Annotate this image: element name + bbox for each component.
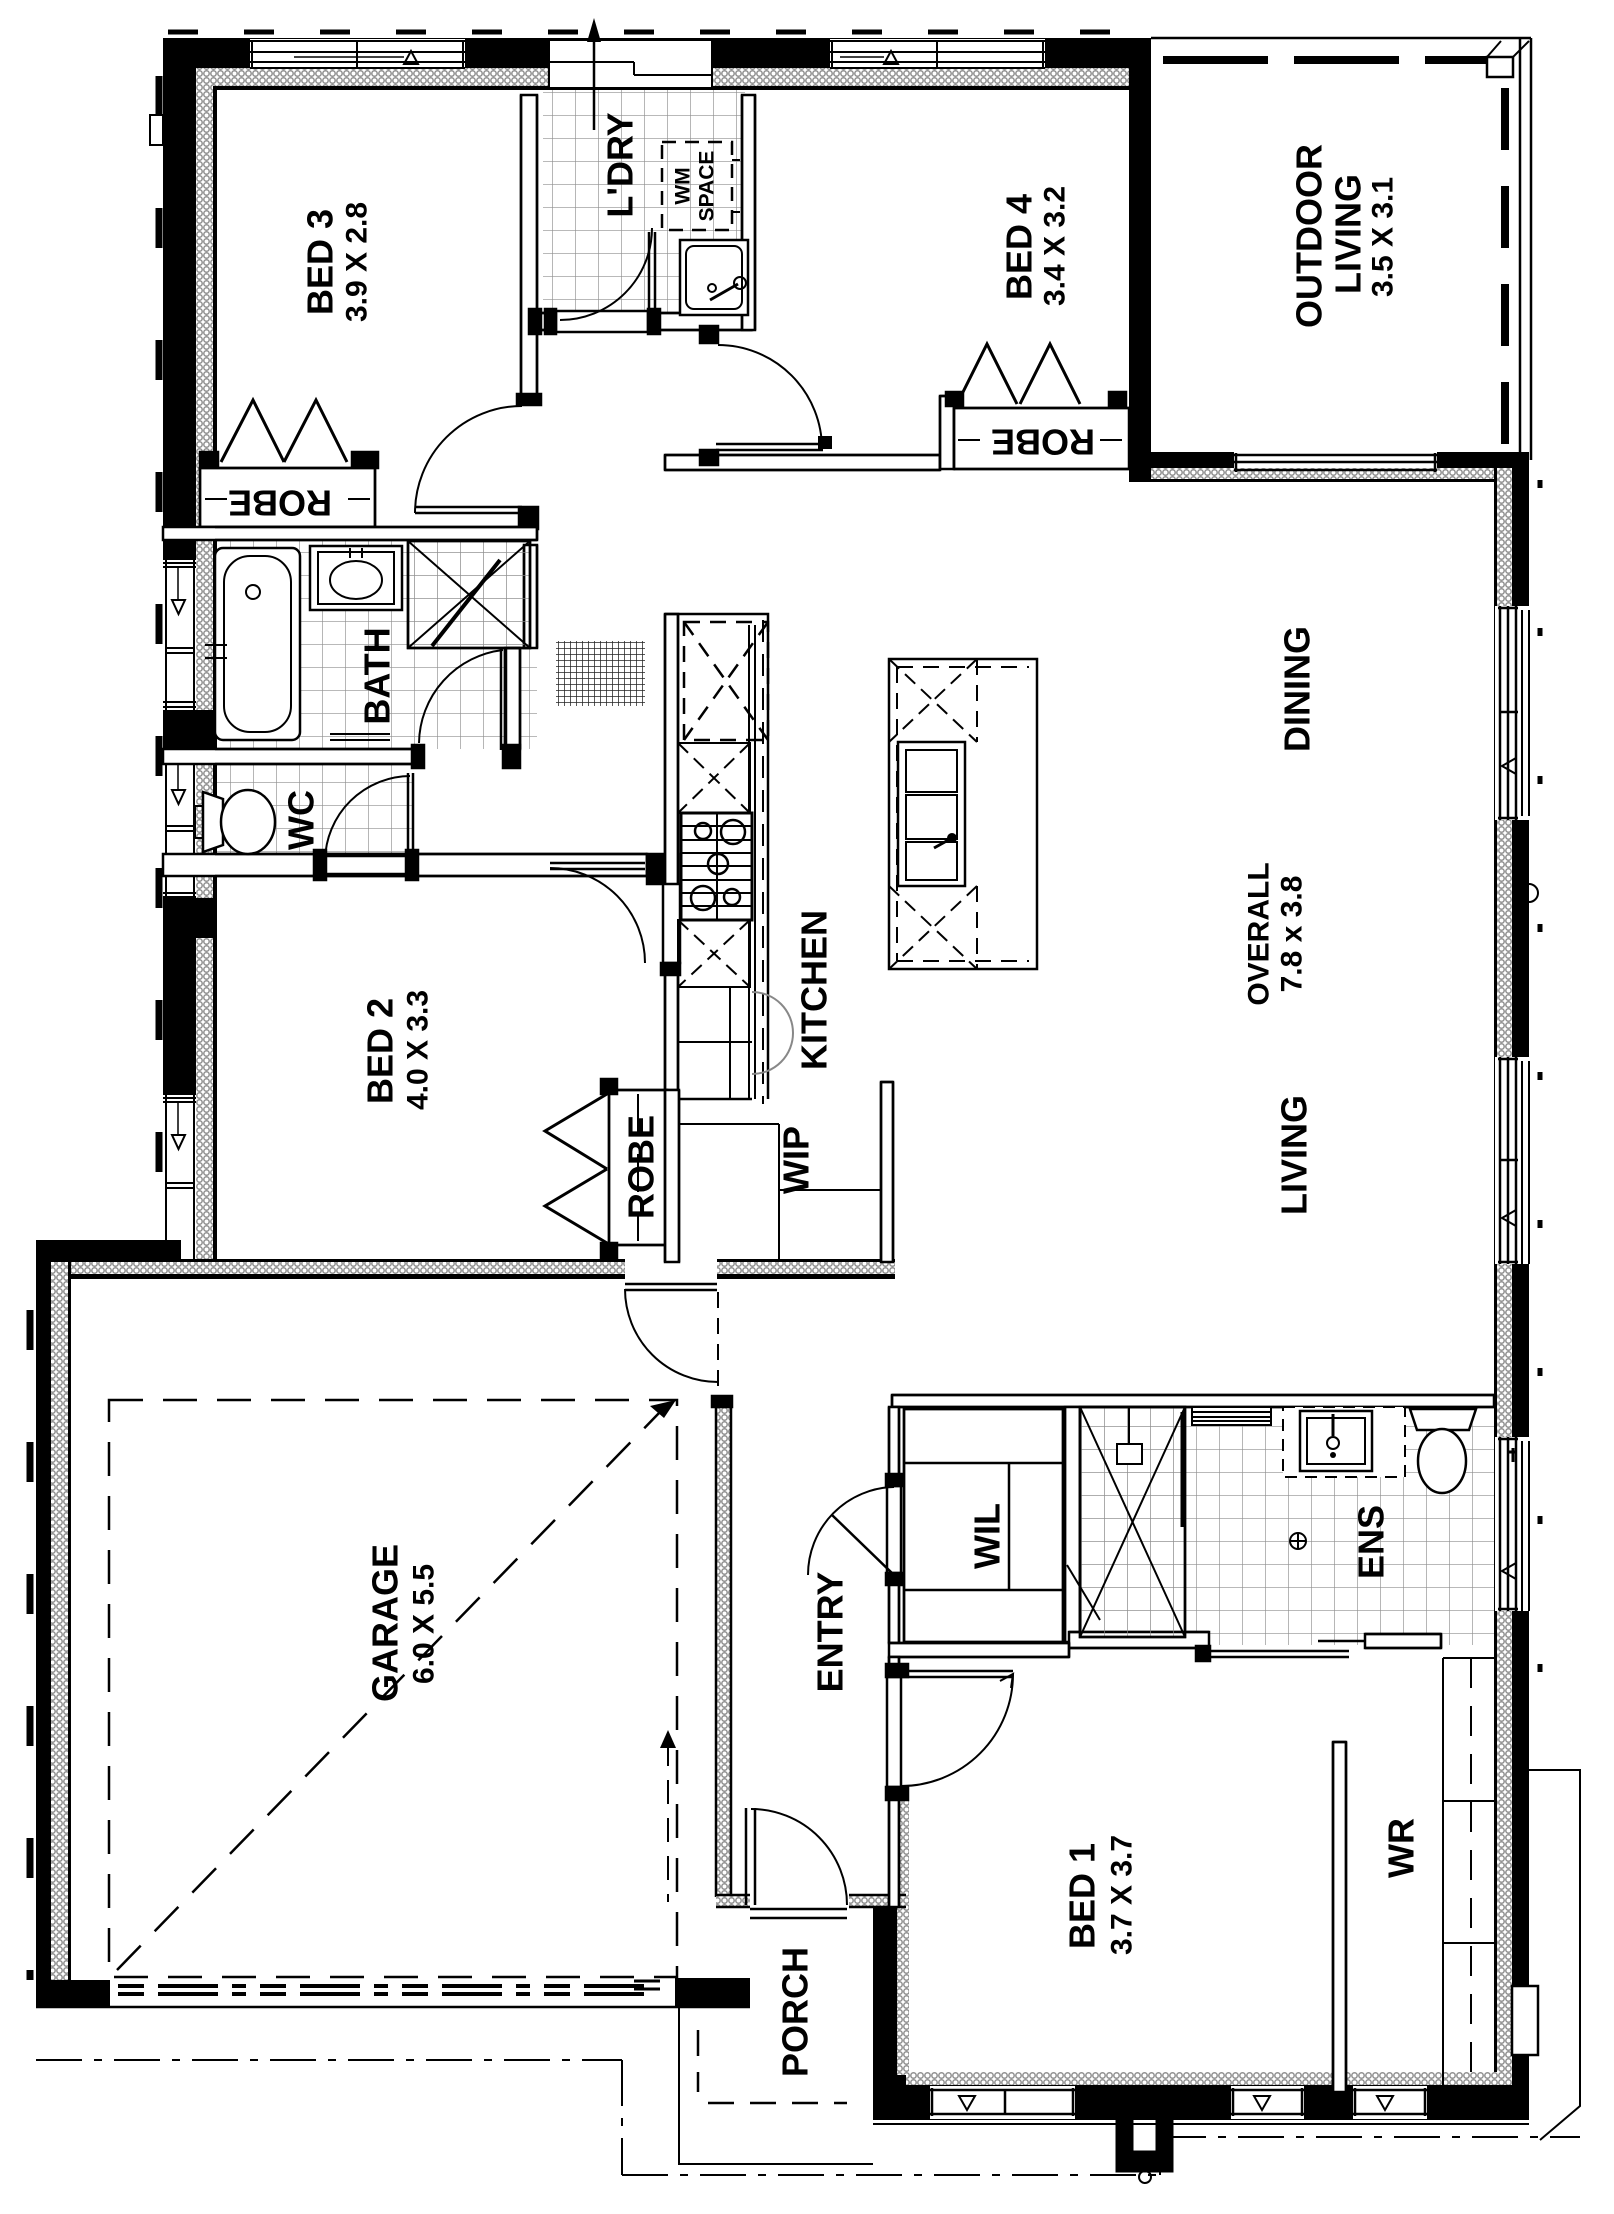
svg-text:BED 1: BED 1 bbox=[1062, 1843, 1103, 1949]
svg-text:WR: WR bbox=[1381, 1818, 1422, 1878]
svg-text:KITCHEN: KITCHEN bbox=[794, 910, 835, 1070]
svg-text:LIVING: LIVING bbox=[1274, 1095, 1315, 1215]
svg-text:WC: WC bbox=[281, 790, 322, 850]
svg-text:WM: WM bbox=[672, 167, 695, 204]
svg-text:BED 4: BED 4 bbox=[999, 194, 1040, 300]
svg-text:7.8 x 3.8: 7.8 x 3.8 bbox=[1276, 876, 1309, 993]
svg-text:OVERALL: OVERALL bbox=[1243, 862, 1276, 1005]
svg-text:LIVING: LIVING bbox=[1328, 174, 1369, 294]
svg-text:ROBE: ROBE bbox=[991, 422, 1095, 463]
svg-text:3.7 X 3.7: 3.7 X 3.7 bbox=[1106, 1835, 1139, 1955]
svg-text:3.9 X 2.8: 3.9 X 2.8 bbox=[341, 202, 374, 322]
svg-text:3.4 X 3.2: 3.4 X 3.2 bbox=[1039, 186, 1072, 306]
svg-text:BED 2: BED 2 bbox=[360, 998, 401, 1104]
svg-text:BED 3: BED 3 bbox=[300, 209, 341, 315]
svg-text:ROBE: ROBE bbox=[228, 483, 332, 524]
svg-text:WIP: WIP bbox=[776, 1126, 817, 1194]
svg-text:WIL: WIL bbox=[967, 1503, 1008, 1569]
svg-text:3.5 X 3.1: 3.5 X 3.1 bbox=[1367, 177, 1400, 297]
svg-text:ROBE: ROBE bbox=[621, 1115, 662, 1219]
svg-text:GARAGE: GARAGE bbox=[365, 1544, 406, 1702]
svg-text:4.0 X 3.3: 4.0 X 3.3 bbox=[402, 990, 435, 1110]
svg-text:6.0 X 5.5: 6.0 X 5.5 bbox=[408, 1564, 441, 1684]
svg-text:BATH: BATH bbox=[357, 627, 398, 724]
svg-text:DINING: DINING bbox=[1277, 626, 1318, 752]
svg-text:ENTRY: ENTRY bbox=[810, 1572, 851, 1693]
svg-text:ENS: ENS bbox=[1351, 1505, 1392, 1579]
svg-text:OUTDOOR: OUTDOOR bbox=[1289, 144, 1330, 328]
svg-text:SPACE: SPACE bbox=[696, 151, 719, 222]
svg-text:L'DRY: L'DRY bbox=[600, 112, 641, 217]
svg-text:PORCH: PORCH bbox=[775, 1947, 816, 2077]
